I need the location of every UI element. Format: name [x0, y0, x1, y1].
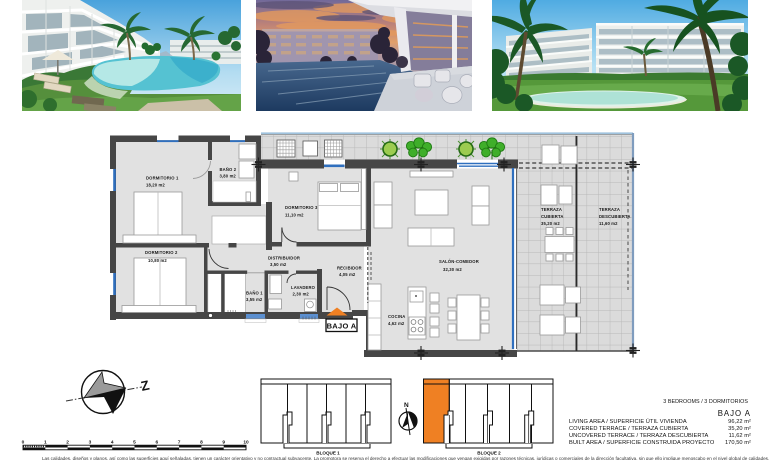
svg-text:11,10 m2: 11,10 m2	[285, 213, 304, 218]
svg-text:SALÓN-COMEDOR: SALÓN-COMEDOR	[439, 259, 479, 264]
svg-text:3,55 m2: 3,55 m2	[246, 297, 263, 302]
svg-text:11,60 m2: 11,60 m2	[599, 221, 618, 226]
svg-text:4,62 m2: 4,62 m2	[388, 321, 405, 326]
svg-text:LIVING AREA / SUPERFICIE ÚTIL: LIVING AREA / SUPERFICIE ÚTIL VIVIENDA	[569, 418, 687, 425]
svg-text:LAVADERO: LAVADERO	[291, 285, 316, 290]
svg-text:8: 8	[200, 440, 203, 446]
svg-text:COVERED TERRACE / TERRAZA CUBI: COVERED TERRACE / TERRAZA CUBIERTA	[569, 426, 688, 432]
svg-text:BLOQUE 2: BLOQUE 2	[477, 451, 501, 456]
svg-text:DORMITORIO 2: DORMITORIO 2	[145, 250, 178, 255]
svg-text:CUBIERTA: CUBIERTA	[541, 214, 564, 219]
svg-text:3,50 m2: 3,50 m2	[270, 262, 287, 267]
svg-text:11,62 m²: 11,62 m²	[729, 433, 751, 439]
svg-text:6: 6	[155, 440, 158, 446]
svg-text:32,30 m2: 32,30 m2	[443, 267, 462, 272]
svg-text:BUILT AREA / SUPERFICIE CONSTR: BUILT AREA / SUPERFICIE CONSTRUIDA PROYE…	[569, 440, 715, 446]
svg-text:7: 7	[178, 440, 181, 446]
svg-text:BAJO A: BAJO A	[327, 322, 357, 331]
svg-text:BAÑO 2: BAÑO 2	[220, 167, 237, 172]
svg-text:170,50 m²: 170,50 m²	[725, 440, 751, 446]
svg-text:10: 10	[243, 440, 249, 446]
svg-text:2: 2	[66, 440, 69, 446]
svg-text:3 BEDROOMS / 3 DORMITORIOS: 3 BEDROOMS / 3 DORMITORIOS	[663, 399, 748, 405]
svg-text:DISTRIBUIDOR: DISTRIBUIDOR	[268, 256, 300, 261]
svg-text:COCINA: COCINA	[388, 314, 405, 319]
svg-text:1: 1	[44, 440, 47, 446]
svg-text:BLOQUE 1: BLOQUE 1	[316, 451, 340, 456]
svg-text:Z: Z	[140, 378, 151, 394]
svg-text:0: 0	[22, 440, 25, 446]
svg-text:N: N	[404, 402, 409, 409]
svg-text:3,80 m2: 3,80 m2	[220, 174, 237, 179]
svg-text:35,20 m²: 35,20 m²	[728, 426, 751, 432]
svg-text:5: 5	[133, 440, 136, 446]
svg-text:9: 9	[222, 440, 225, 446]
svg-text:TERRAZA: TERRAZA	[541, 207, 562, 212]
svg-text:UNCOVERED TERRACE / TERRAZA DE: UNCOVERED TERRACE / TERRAZA DESCUBIERTA	[569, 433, 708, 439]
svg-text:Las calidades, diseños y plano: Las calidades, diseños y planos, así com…	[42, 456, 769, 460]
svg-text:BAJO A: BAJO A	[718, 409, 751, 418]
svg-text:TERRAZA: TERRAZA	[599, 207, 620, 212]
svg-text:18,20 m2: 18,20 m2	[146, 183, 165, 188]
svg-text:96,22 m²: 96,22 m²	[728, 419, 751, 425]
svg-text:10,80 m2: 10,80 m2	[148, 258, 167, 263]
svg-text:BAÑO 1: BAÑO 1	[246, 291, 263, 296]
svg-text:RECIBIDOR: RECIBIDOR	[337, 266, 362, 271]
svg-text:DORMITORIO 3: DORMITORIO 3	[285, 205, 318, 210]
svg-text:3: 3	[89, 440, 92, 446]
svg-text:2,30 m2: 2,30 m2	[293, 292, 310, 297]
svg-text:DESCUBIERTA: DESCUBIERTA	[599, 214, 631, 219]
svg-text:35,20 m2: 35,20 m2	[541, 221, 560, 226]
svg-text:4,05 m2: 4,05 m2	[339, 272, 356, 277]
svg-text:DORMITORIO 1: DORMITORIO 1	[146, 176, 179, 181]
svg-text:4: 4	[111, 440, 114, 446]
